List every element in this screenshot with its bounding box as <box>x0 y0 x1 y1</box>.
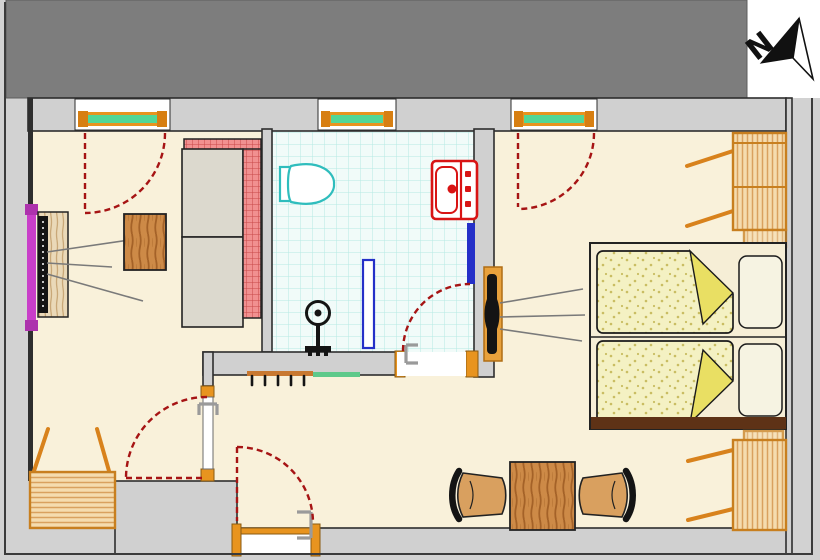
wall-living-hallway <box>203 352 213 386</box>
entry-door-leaf <box>241 528 311 534</box>
floor-plan: N <box>0 0 820 560</box>
chair-left <box>458 473 506 517</box>
shower-screen <box>363 260 374 348</box>
door-jamb <box>232 524 241 556</box>
door-jamb <box>201 469 214 481</box>
floor-plan-drawing: N <box>0 0 820 560</box>
window-bedroom <box>514 111 594 127</box>
pillow <box>739 256 782 328</box>
sofa-bed <box>182 139 261 327</box>
sink-faucet <box>448 185 457 194</box>
sofa-backrest-side <box>243 149 261 318</box>
sink-knob <box>465 171 471 177</box>
sink-knob <box>465 186 471 192</box>
window-living <box>78 111 167 127</box>
wall-shelf <box>313 372 360 377</box>
sofa-seat <box>182 237 243 327</box>
pillow <box>739 344 782 416</box>
chair-right <box>579 473 627 517</box>
door-jamb <box>201 386 214 397</box>
door-leaf <box>203 397 213 469</box>
double-bed <box>590 243 786 429</box>
wall-tv-board <box>484 267 502 361</box>
window-bathroom <box>321 111 393 127</box>
door-jamb <box>466 351 478 377</box>
sofa-seat <box>182 149 243 237</box>
coffee-table <box>124 214 166 270</box>
bed-footboard <box>591 417 786 429</box>
sink-knob <box>465 201 471 207</box>
dining-table <box>510 462 575 530</box>
bathroom-door-leaf <box>467 223 475 284</box>
toilet <box>280 164 334 204</box>
wall-living-bathroom <box>262 129 272 352</box>
wall-bottom-left-block <box>115 481 237 554</box>
washbasin <box>432 161 477 219</box>
building-mass <box>6 0 747 98</box>
